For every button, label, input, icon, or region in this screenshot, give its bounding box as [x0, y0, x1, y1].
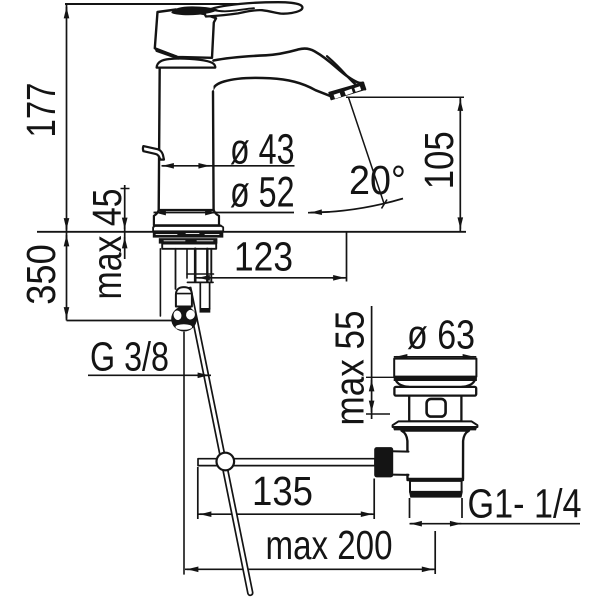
svg-text:135: 135 — [252, 468, 313, 514]
svg-text:max 55: max 55 — [327, 311, 373, 426]
svg-text:177: 177 — [18, 83, 64, 138]
svg-text:G1- 1/4: G1- 1/4 — [468, 481, 582, 527]
svg-text:ø 52: ø 52 — [230, 169, 295, 217]
svg-text:20°: 20° — [349, 157, 406, 203]
svg-text:ø 63: ø 63 — [407, 312, 475, 358]
svg-text:105: 105 — [416, 131, 462, 189]
svg-text:max 200: max 200 — [266, 522, 393, 568]
svg-text:350: 350 — [18, 244, 64, 305]
svg-text:123: 123 — [234, 234, 293, 280]
svg-text:G 3/8: G 3/8 — [90, 334, 169, 380]
svg-text:max 45: max 45 — [84, 189, 130, 300]
